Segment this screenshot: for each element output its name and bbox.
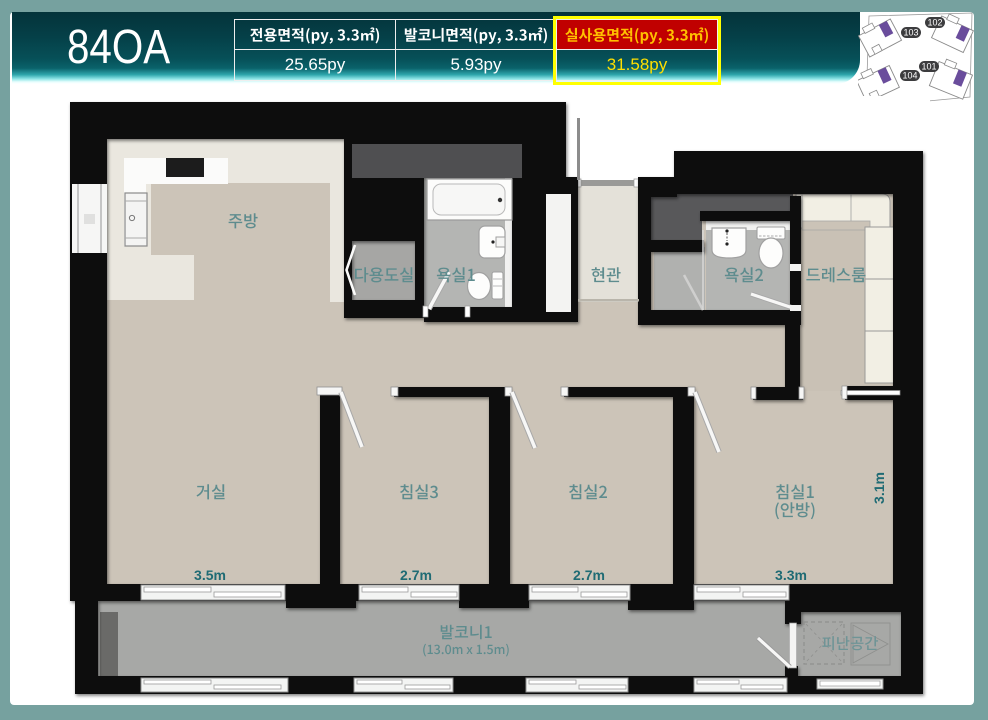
svg-text:3.1m: 3.1m <box>871 472 887 504</box>
svg-text:3.5m: 3.5m <box>194 567 226 583</box>
svg-text:3.3m: 3.3m <box>775 567 807 583</box>
svg-text:2.7m: 2.7m <box>400 567 432 583</box>
svg-text:2.7m: 2.7m <box>573 567 605 583</box>
